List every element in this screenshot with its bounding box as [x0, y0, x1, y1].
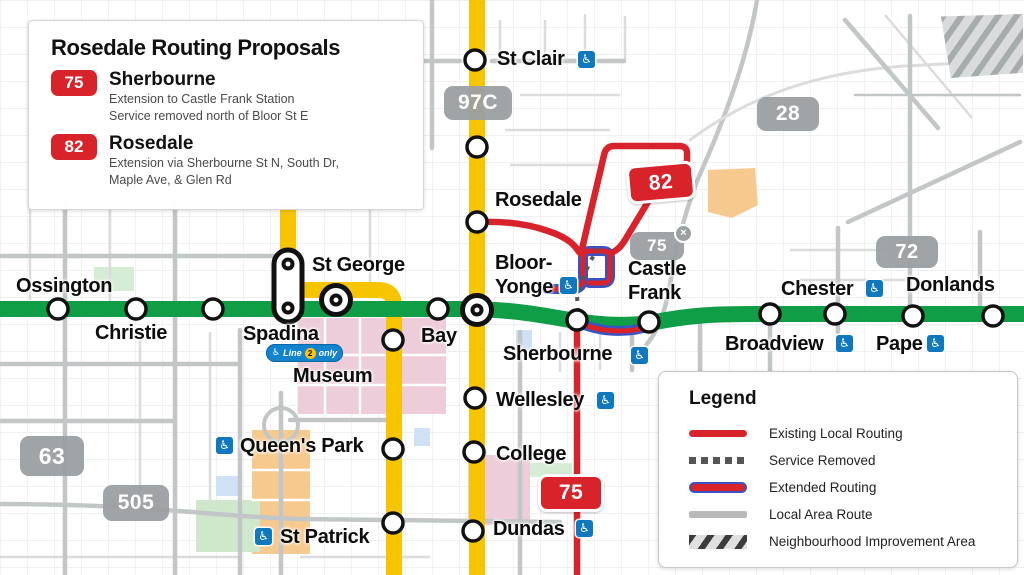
- accessibility-icon: ♿: [255, 528, 272, 545]
- route-badge-63: 63: [20, 436, 84, 476]
- legend-item: Neighbourhood Improvement Area: [689, 528, 1017, 555]
- legend-item: Existing Local Routing: [689, 420, 1017, 447]
- extended-routing-swatch: [689, 482, 751, 493]
- route-badge-82: 82: [625, 160, 696, 205]
- station-label-dundas: Dundas: [493, 519, 565, 539]
- transit-map: Ossington Christie Spadina St George Mus…: [0, 0, 1024, 575]
- accessibility-icon: ♿: [597, 392, 614, 409]
- station-label-ossington: Ossington: [16, 276, 112, 296]
- station-label-st-george: St George: [312, 255, 405, 275]
- route-badge-505: 505: [103, 485, 169, 521]
- station-label-yonge: Yonge: [495, 277, 553, 297]
- route-badge-75-key: 75: [51, 70, 97, 96]
- page-title: Rosedale Routing Proposals: [51, 35, 423, 61]
- accessibility-icon: ♿: [216, 437, 233, 454]
- route-badge-82-key: 82: [51, 134, 97, 160]
- legend-item-label: Existing Local Routing: [769, 426, 903, 441]
- route-name: Sherbourne: [109, 69, 423, 91]
- legend-item: Service Removed: [689, 447, 1017, 474]
- station-label-frank: Frank: [628, 283, 681, 303]
- accessibility-icon: ♿: [836, 335, 853, 352]
- route-badge-97c: 97C: [444, 86, 512, 120]
- legend-item: Extended Routing: [689, 474, 1017, 501]
- legend-item-label: Neighbourhood Improvement Area: [769, 534, 975, 549]
- station-label-christie: Christie: [95, 323, 167, 343]
- accessibility-icon: ♿: [927, 335, 944, 352]
- station-label-rosedale: Rosedale: [495, 190, 582, 210]
- accessibility-icon: ♿: [576, 520, 593, 537]
- legend-item: Local Area Route: [689, 501, 1017, 528]
- station-label-sherbourne: Sherbourne: [503, 344, 612, 364]
- route-badge-28: 28: [757, 97, 819, 131]
- station-label-broadview: Broadview: [725, 334, 823, 354]
- station-label-pape: Pape: [876, 334, 923, 354]
- line2-number: 2: [305, 348, 316, 359]
- route-description-line: Maple Ave, & Glen Rd: [109, 172, 423, 190]
- accessibility-icon: ♿: [578, 51, 595, 68]
- station-label-bloor: Bloor-: [495, 253, 552, 273]
- proposals-panel: Rosedale Routing Proposals 75 Sherbourne…: [28, 20, 424, 210]
- neighbourhood-improvement-area: [941, 14, 1023, 78]
- legend-title: Legend: [689, 388, 1017, 410]
- route-description-line: Extension via Sherbourne St N, South Dr,: [109, 155, 423, 173]
- station-label-st-patrick: St Patrick: [280, 527, 369, 547]
- legend-item-label: Local Area Route: [769, 507, 873, 522]
- local-area-route-swatch: [689, 511, 751, 518]
- accessibility-icon: ♿: [272, 348, 280, 358]
- station-label-spadina: Spadina: [243, 324, 319, 344]
- station-label-castle: Castle: [628, 259, 686, 279]
- neighbourhood-improvement-swatch: [689, 535, 751, 549]
- accessibility-icon: ♿: [631, 347, 648, 364]
- line2-word1: Line: [283, 348, 302, 358]
- accessibility-icon: ♿: [560, 277, 577, 294]
- existing-routing-swatch: [689, 430, 751, 437]
- accessibility-icon: ♿: [866, 280, 883, 297]
- legend-panel: Legend Existing Local Routing Service Re…: [658, 371, 1018, 568]
- spadina-line2-only-badge: ♿ Line 2 only: [266, 344, 343, 362]
- legend-item-label: Service Removed: [769, 453, 876, 468]
- station-label-museum: Museum: [293, 366, 372, 386]
- service-removed-swatch: [689, 457, 751, 464]
- route-badge-72: 72: [876, 236, 938, 268]
- proposal-route-82: 82 Rosedale Extension via Sherbourne St …: [51, 133, 423, 190]
- station-label-queens-park: Queen's Park: [240, 436, 363, 456]
- station-label-wellesley: Wellesley: [496, 390, 584, 410]
- station-label-college: College: [496, 444, 566, 464]
- route-description-line: Extension to Castle Frank Station: [109, 91, 423, 109]
- station-label-donlands: Donlands: [906, 275, 995, 295]
- line2-word2: only: [319, 348, 338, 358]
- legend-item-label: Extended Routing: [769, 480, 876, 495]
- station-label-bay: Bay: [421, 326, 457, 346]
- route-name: Rosedale: [109, 133, 423, 155]
- station-label-chester: Chester: [781, 279, 853, 299]
- removed-x-icon: ×: [674, 224, 693, 243]
- route-badge-75: 75: [538, 474, 604, 512]
- proposal-route-75: 75 Sherbourne Extension to Castle Frank …: [51, 69, 423, 126]
- route-description-line: Service removed north of Bloor St E: [109, 108, 423, 126]
- station-label-st-clair: St Clair: [497, 49, 565, 69]
